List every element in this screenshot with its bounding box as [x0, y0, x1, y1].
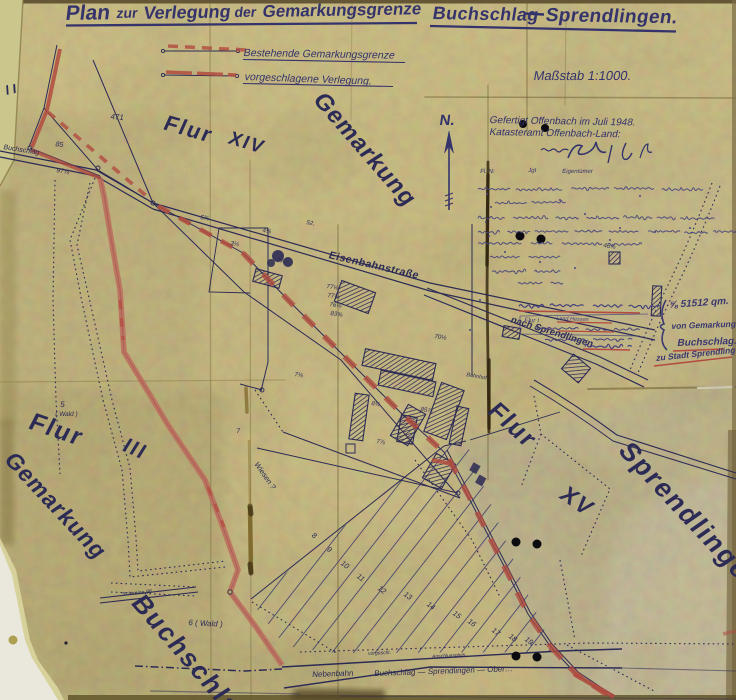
svg-text:Plan: Plan	[64, 1, 111, 25]
svg-text:Eigentümer: Eigentümer	[562, 169, 593, 175]
svg-text:zur: zur	[116, 5, 139, 21]
svg-text:Verlegung: Verlegung	[143, 2, 232, 23]
svg-text:Katasteramt Offenbach-Land:: Katasteramt Offenbach-Land:	[488, 127, 621, 140]
svg-text:vorgeschl.: vorgeschl.	[368, 650, 391, 657]
svg-text:6 ( Wald ): 6 ( Wald )	[188, 618, 224, 629]
svg-text:471: 471	[110, 112, 126, 122]
svg-text:l I: l I	[5, 81, 17, 98]
svg-text:( Wald ): ( Wald )	[55, 411, 78, 418]
svg-text:Fl. N:: Fl. N:	[480, 169, 495, 175]
svg-text:der: der	[234, 4, 258, 20]
svg-text:Jgt: Jgt	[528, 168, 537, 174]
svg-text:Sprendlingen.: Sprendlingen.	[544, 5, 679, 28]
svg-text:Gemarkungsgrenze: Gemarkungsgrenze	[262, 0, 423, 21]
svg-text:Flur I: Flur I	[524, 317, 540, 324]
svg-text:N.: N.	[438, 112, 455, 129]
svg-text:Maßstab 1:1000.: Maßstab 1:1000.	[532, 68, 632, 83]
svg-text:Nebenbahn: Nebenbahn	[312, 669, 354, 679]
